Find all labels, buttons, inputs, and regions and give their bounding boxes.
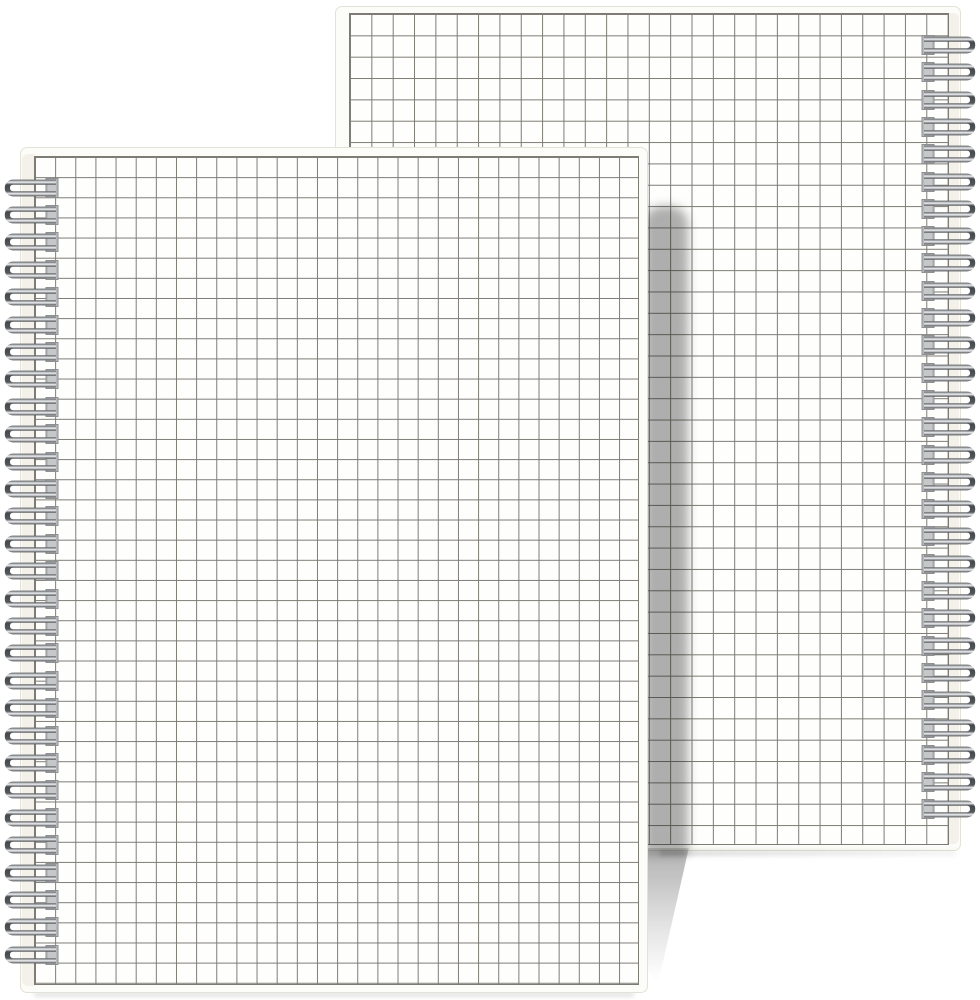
notebook-front-cover bbox=[20, 147, 648, 993]
contact-shadow-back-bottom bbox=[660, 850, 956, 856]
grid-paper-front bbox=[34, 156, 639, 985]
cast-shadow-band bbox=[644, 206, 688, 854]
